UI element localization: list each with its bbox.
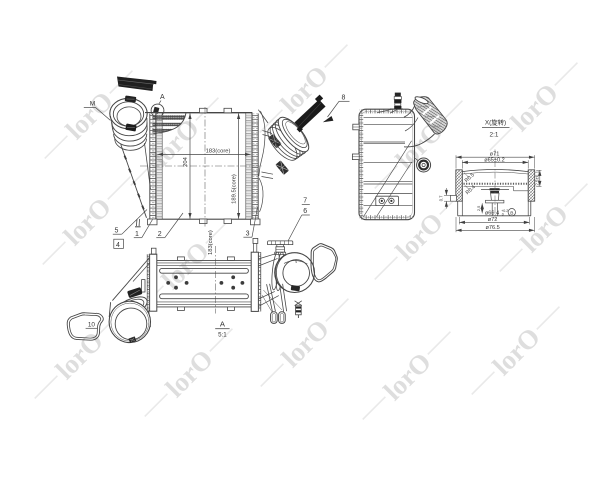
svg-text:ø72: ø72	[488, 217, 498, 223]
svg-text:204: 204	[183, 156, 189, 166]
svg-text:0: 0	[502, 213, 504, 217]
svg-text:X(旋转): X(旋转)	[485, 118, 506, 127]
svg-text:1: 1	[135, 231, 139, 238]
svg-text:ø65±0.2: ø65±0.2	[484, 158, 505, 164]
svg-text:ø76.5: ø76.5	[485, 225, 499, 231]
svg-text:B: B	[510, 210, 513, 216]
svg-text:183(core): 183(core)	[208, 230, 214, 255]
svg-text:5:1: 5:1	[218, 332, 227, 339]
svg-text:A: A	[160, 94, 165, 101]
svg-text:2:1: 2:1	[490, 131, 499, 138]
svg-text:2.5±0.1: 2.5±0.1	[534, 170, 539, 185]
svg-text:5: 5	[115, 228, 119, 235]
svg-text:4: 4	[116, 242, 120, 249]
svg-text:8: 8	[342, 95, 346, 102]
svg-text:2.5: 2.5	[476, 205, 481, 211]
svg-text:M: M	[90, 100, 96, 107]
svg-text:2: 2	[158, 231, 162, 238]
svg-text:183(core): 183(core)	[206, 149, 231, 155]
svg-text:189.5(core): 189.5(core)	[232, 174, 238, 204]
svg-text:7: 7	[303, 198, 307, 205]
svg-text:3: 3	[246, 230, 250, 237]
svg-text:10: 10	[88, 321, 96, 328]
svg-text:ø66.4: ø66.4	[485, 210, 499, 216]
svg-text:0.7: 0.7	[439, 195, 444, 201]
svg-text:6: 6	[303, 208, 307, 215]
